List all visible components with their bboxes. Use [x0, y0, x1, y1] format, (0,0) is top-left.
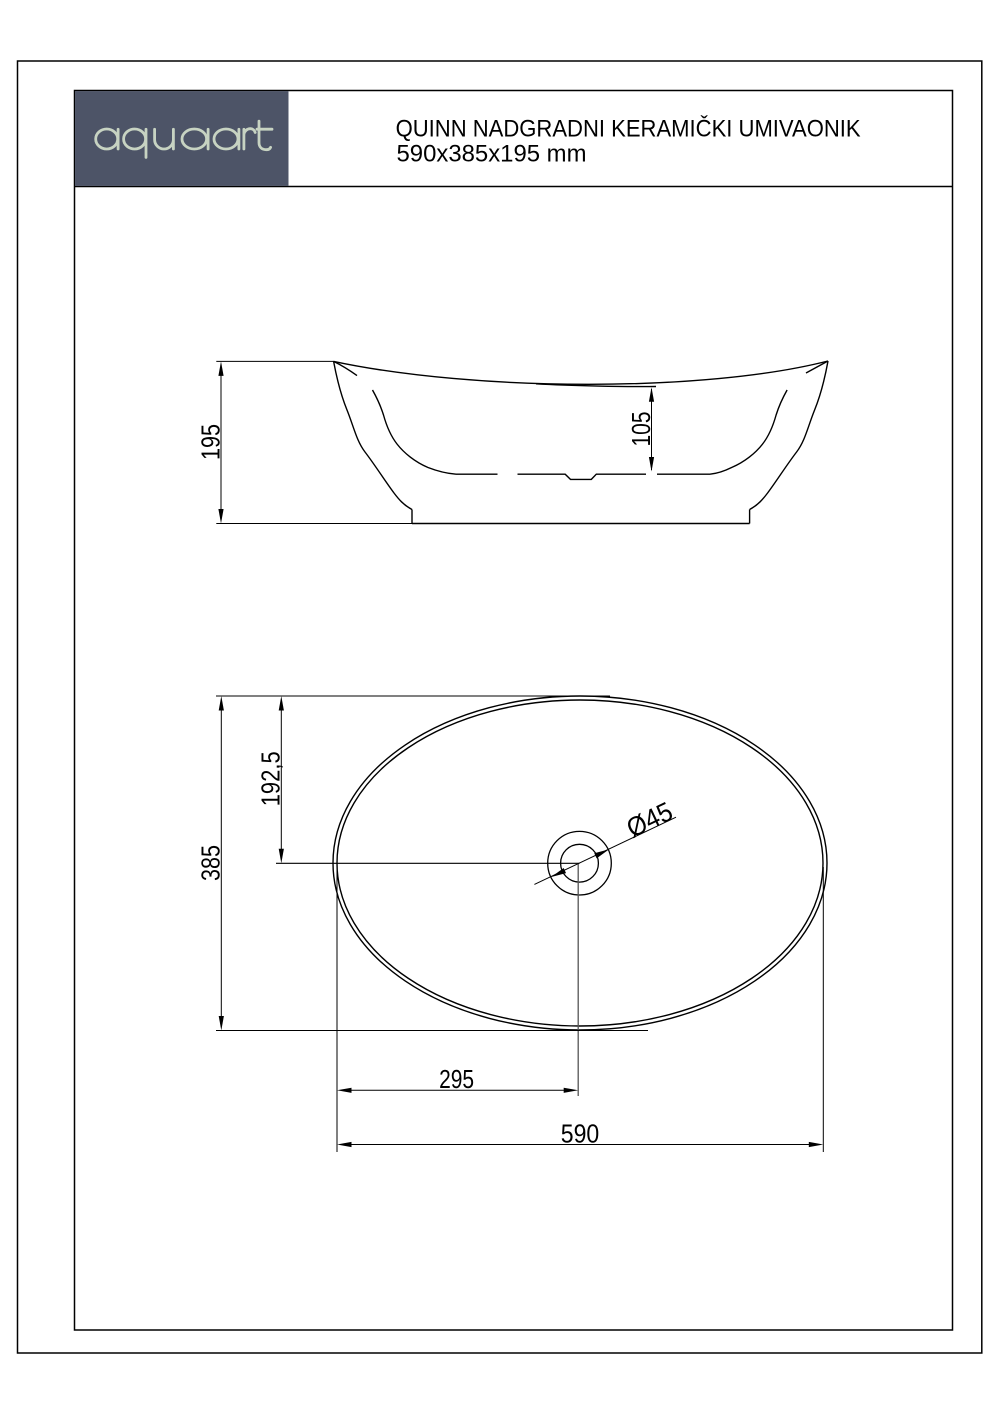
svg-text:590: 590: [561, 1118, 600, 1148]
svg-text:590x385x195 mm: 590x385x195 mm: [397, 141, 587, 168]
svg-text:385: 385: [196, 845, 226, 881]
svg-text:192,5: 192,5: [256, 751, 286, 806]
svg-text:195: 195: [195, 424, 225, 460]
svg-text:295: 295: [439, 1064, 474, 1094]
svg-text:QUINN NADGRADNI KERAMIČKI UMIV: QUINN NADGRADNI KERAMIČKI UMIVAONIK: [396, 115, 861, 143]
svg-text:105: 105: [626, 412, 656, 447]
